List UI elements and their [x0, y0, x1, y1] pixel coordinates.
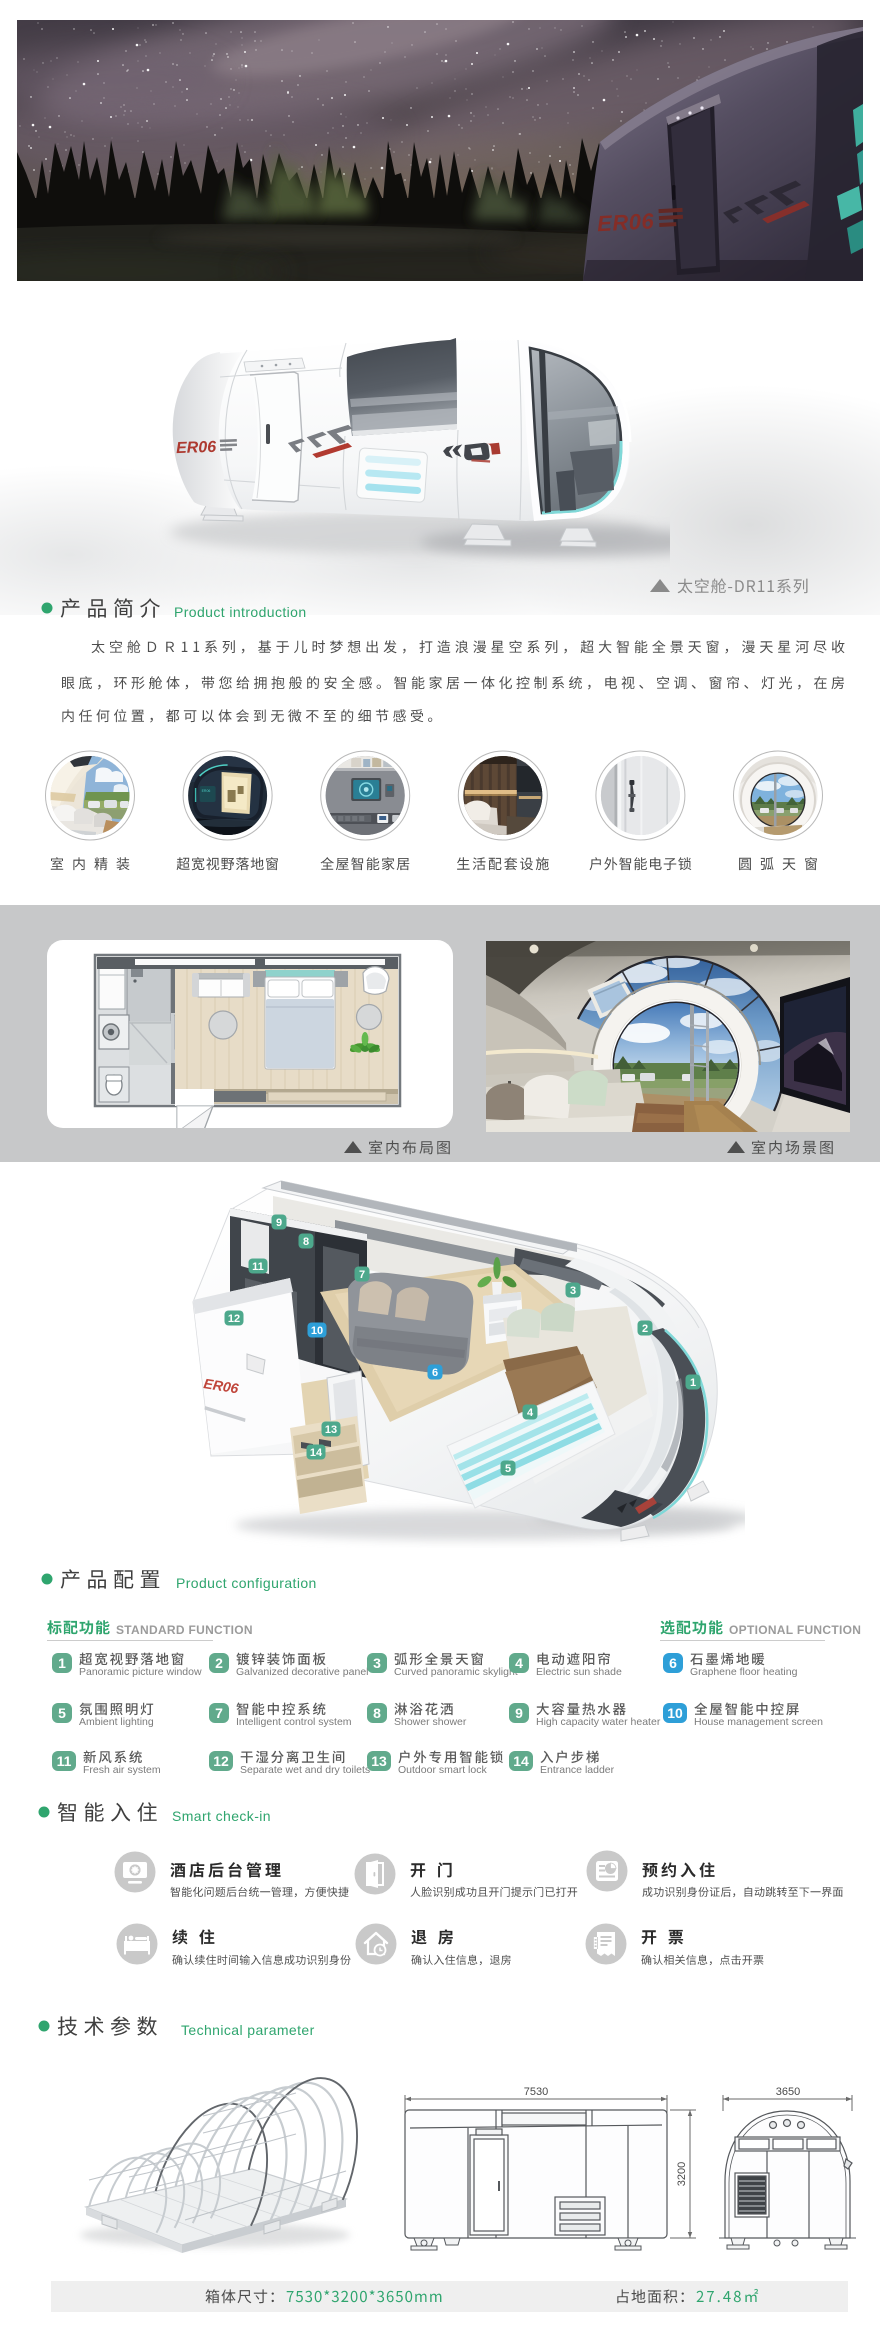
svg-text:9: 9	[276, 1217, 282, 1229]
svg-text:3650: 3650	[776, 2086, 800, 2098]
svg-text:4: 4	[527, 1407, 534, 1419]
svg-text:14: 14	[310, 1447, 323, 1459]
svg-text:7: 7	[359, 1269, 365, 1281]
svg-text:12: 12	[228, 1313, 240, 1325]
svg-text:11: 11	[252, 1261, 264, 1273]
svg-text:10: 10	[311, 1325, 323, 1337]
svg-text:13: 13	[325, 1424, 337, 1436]
svg-text:1: 1	[690, 1377, 696, 1389]
svg-text:5: 5	[505, 1463, 511, 1475]
svg-text:3: 3	[570, 1285, 576, 1297]
svg-text:3200: 3200	[676, 2162, 688, 2186]
svg-text:2: 2	[642, 1323, 648, 1335]
svg-text:6: 6	[432, 1367, 438, 1379]
svg-text:ER06: ER06	[202, 789, 211, 793]
svg-text:ER06: ER06	[176, 439, 217, 457]
svg-text:7530: 7530	[524, 2086, 548, 2098]
svg-text:8: 8	[303, 1236, 309, 1248]
svg-text:ER06: ER06	[597, 208, 656, 236]
